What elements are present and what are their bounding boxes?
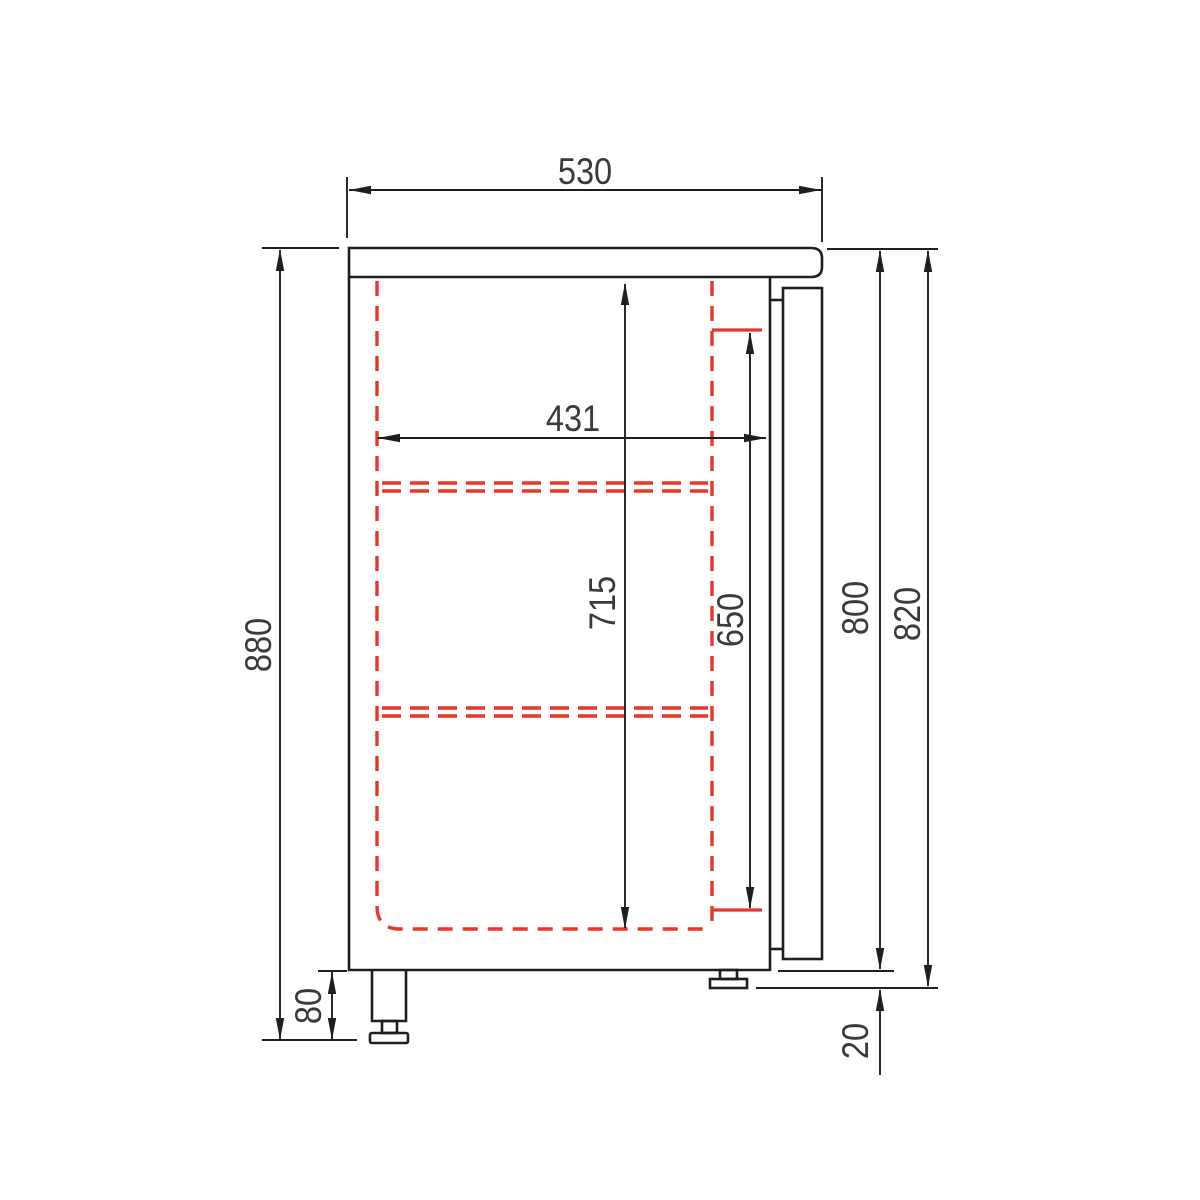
arrow-431-left bbox=[378, 434, 400, 442]
dim-label-800: 800 bbox=[835, 581, 876, 635]
door-panel bbox=[783, 288, 822, 959]
dim-label-431: 431 bbox=[546, 398, 600, 439]
arrow-431-right bbox=[744, 434, 766, 442]
dim-label-20: 20 bbox=[835, 1023, 876, 1059]
dim-label-880: 880 bbox=[238, 618, 279, 672]
dim-label-530: 530 bbox=[558, 151, 612, 192]
countertop bbox=[349, 248, 822, 277]
arrow-800-top bbox=[876, 250, 884, 272]
interior-outline-left-bottom bbox=[377, 281, 706, 929]
front-leg bbox=[372, 970, 406, 1021]
arrow-715-top bbox=[621, 283, 629, 305]
arrow-20-up bbox=[876, 989, 884, 1011]
arrow-820-top bbox=[924, 250, 932, 272]
interior-dashed-lines bbox=[377, 281, 762, 929]
technical-drawing-page: 530 431 880 80 715 650 800 820 20 bbox=[0, 0, 1200, 1200]
arrow-650-top bbox=[746, 332, 754, 354]
rear-foot-stem bbox=[720, 970, 737, 979]
dim-label-820: 820 bbox=[887, 587, 928, 641]
arrow-880-bottom bbox=[276, 1018, 284, 1040]
arrow-880-top bbox=[276, 249, 284, 271]
dimension-labels: 530 431 880 80 715 650 800 820 20 bbox=[238, 151, 928, 1059]
arrow-715-bottom bbox=[621, 907, 629, 929]
rear-foot-plate bbox=[710, 979, 747, 988]
arrow-530-left bbox=[349, 186, 371, 194]
cabinet-body bbox=[349, 277, 770, 970]
front-leg-stem bbox=[382, 1021, 397, 1033]
dim-label-715: 715 bbox=[582, 576, 623, 630]
arrow-800-bottom bbox=[876, 948, 884, 970]
side-section-drawing: 530 431 880 80 715 650 800 820 20 bbox=[0, 0, 1200, 1200]
dim-label-80: 80 bbox=[288, 988, 329, 1024]
front-leg-foot-plate bbox=[370, 1033, 408, 1043]
arrow-820-bottom bbox=[924, 965, 932, 987]
arrow-650-bottom bbox=[746, 887, 754, 909]
arrow-530-right bbox=[799, 186, 821, 194]
dim-label-650: 650 bbox=[710, 593, 751, 647]
